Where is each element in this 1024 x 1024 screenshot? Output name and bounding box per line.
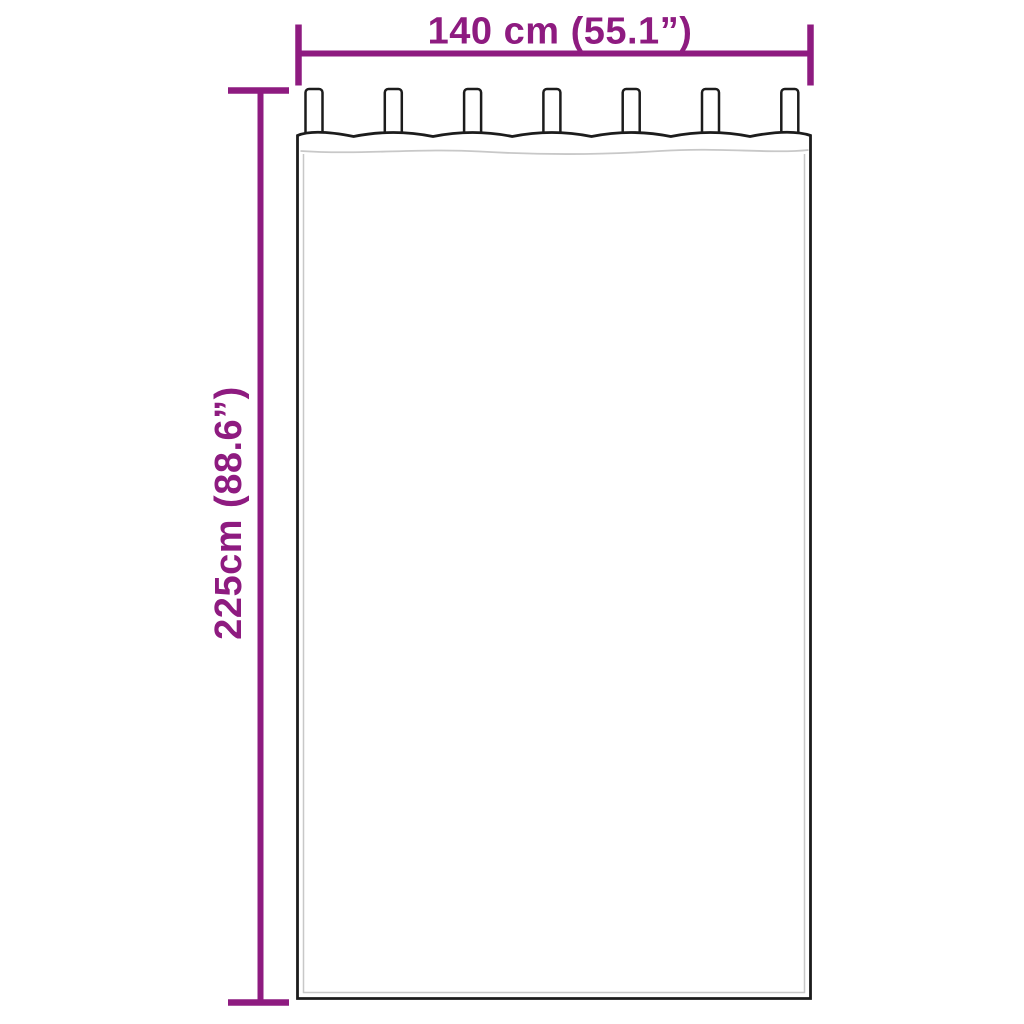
curtain-tab [623,89,640,137]
curtain-tab-loops [306,89,799,137]
curtain-tab [385,89,402,137]
curtain-panel [298,132,811,998]
curtain-dimension-diagram: 140 cm (55.1”) 225cm (88.6”) [0,0,1024,1024]
diagram-svg: 140 cm (55.1”) 225cm (88.6”) [0,0,1024,1024]
height-dimension-label: 225cm (88.6”) [208,386,250,640]
curtain-tab [464,89,481,137]
curtain-tab [543,89,560,137]
curtain-tab [781,89,798,137]
curtain-drawing [298,89,811,999]
width-dimension-label: 140 cm (55.1”) [428,11,693,53]
curtain-tab [306,89,323,137]
curtain-tab [702,89,719,137]
